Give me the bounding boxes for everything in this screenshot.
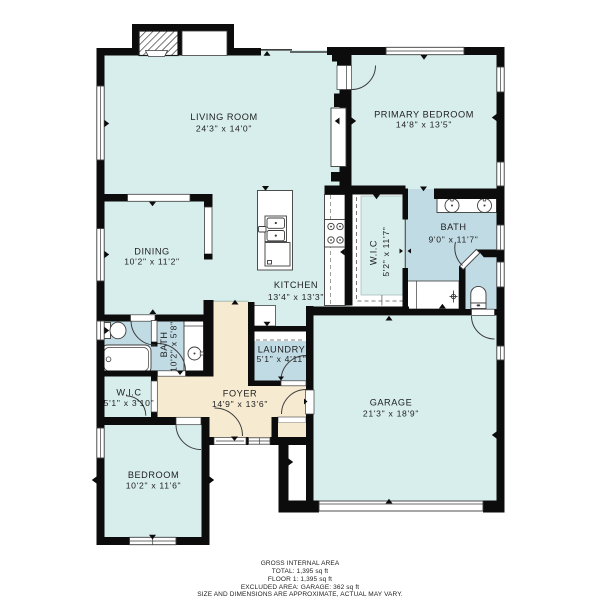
svg-text:13'4" x 13'3": 13'4" x 13'3" xyxy=(268,292,324,302)
svg-text:GROSS INTERNAL AREA: GROSS INTERNAL AREA xyxy=(261,560,340,567)
svg-text:KITCHEN: KITCHEN xyxy=(274,280,318,290)
svg-text:GARAGE: GARAGE xyxy=(370,397,413,407)
svg-text:14'9" x 13'6": 14'9" x 13'6" xyxy=(212,399,268,409)
svg-text:DINING: DINING xyxy=(134,246,169,256)
svg-text:PRIMARY BEDROOM: PRIMARY BEDROOM xyxy=(374,110,474,120)
svg-text:10'2" x 11'6": 10'2" x 11'6" xyxy=(126,481,182,491)
svg-text:BEDROOM: BEDROOM xyxy=(128,470,179,480)
svg-text:W.I.C: W.I.C xyxy=(368,240,378,265)
svg-text:BATH: BATH xyxy=(440,222,466,232)
svg-text:FOYER: FOYER xyxy=(223,388,257,398)
svg-text:24'3" x 14'0": 24'3" x 14'0" xyxy=(196,123,252,133)
svg-text:SIZE AND DIMENSIONS ARE APPROX: SIZE AND DIMENSIONS ARE APPROXIMATE, ACT… xyxy=(197,591,403,598)
svg-text:5'1" x 4'11": 5'1" x 4'11" xyxy=(256,354,306,364)
svg-text:10'2" x 11'2": 10'2" x 11'2" xyxy=(124,256,180,266)
svg-text:LAUNDRY: LAUNDRY xyxy=(258,344,306,354)
svg-text:LIVING ROOM: LIVING ROOM xyxy=(190,112,257,122)
svg-text:5'1" x 3'10": 5'1" x 3'10" xyxy=(104,398,155,408)
svg-text:TOTAL: 1,395 sq ft: TOTAL: 1,395 sq ft xyxy=(272,568,329,575)
svg-text:9'0" x 11'7": 9'0" x 11'7" xyxy=(428,234,478,244)
svg-text:FLOOR 1: 1,395 sq ft: FLOOR 1: 1,395 sq ft xyxy=(268,576,332,583)
svg-text:5'2" x 11'7": 5'2" x 11'7" xyxy=(381,226,391,276)
svg-text:W.I.C: W.I.C xyxy=(116,388,141,398)
svg-text:EXCLUDED AREA: GARAGE: 362 sq: EXCLUDED AREA: GARAGE: 362 sq ft xyxy=(241,584,359,591)
svg-text:21'3" x 18'9": 21'3" x 18'9" xyxy=(363,408,419,418)
svg-text:10'2" x 5'8": 10'2" x 5'8" xyxy=(168,321,178,372)
svg-text:14'8" x 13'5": 14'8" x 13'5" xyxy=(396,120,452,130)
